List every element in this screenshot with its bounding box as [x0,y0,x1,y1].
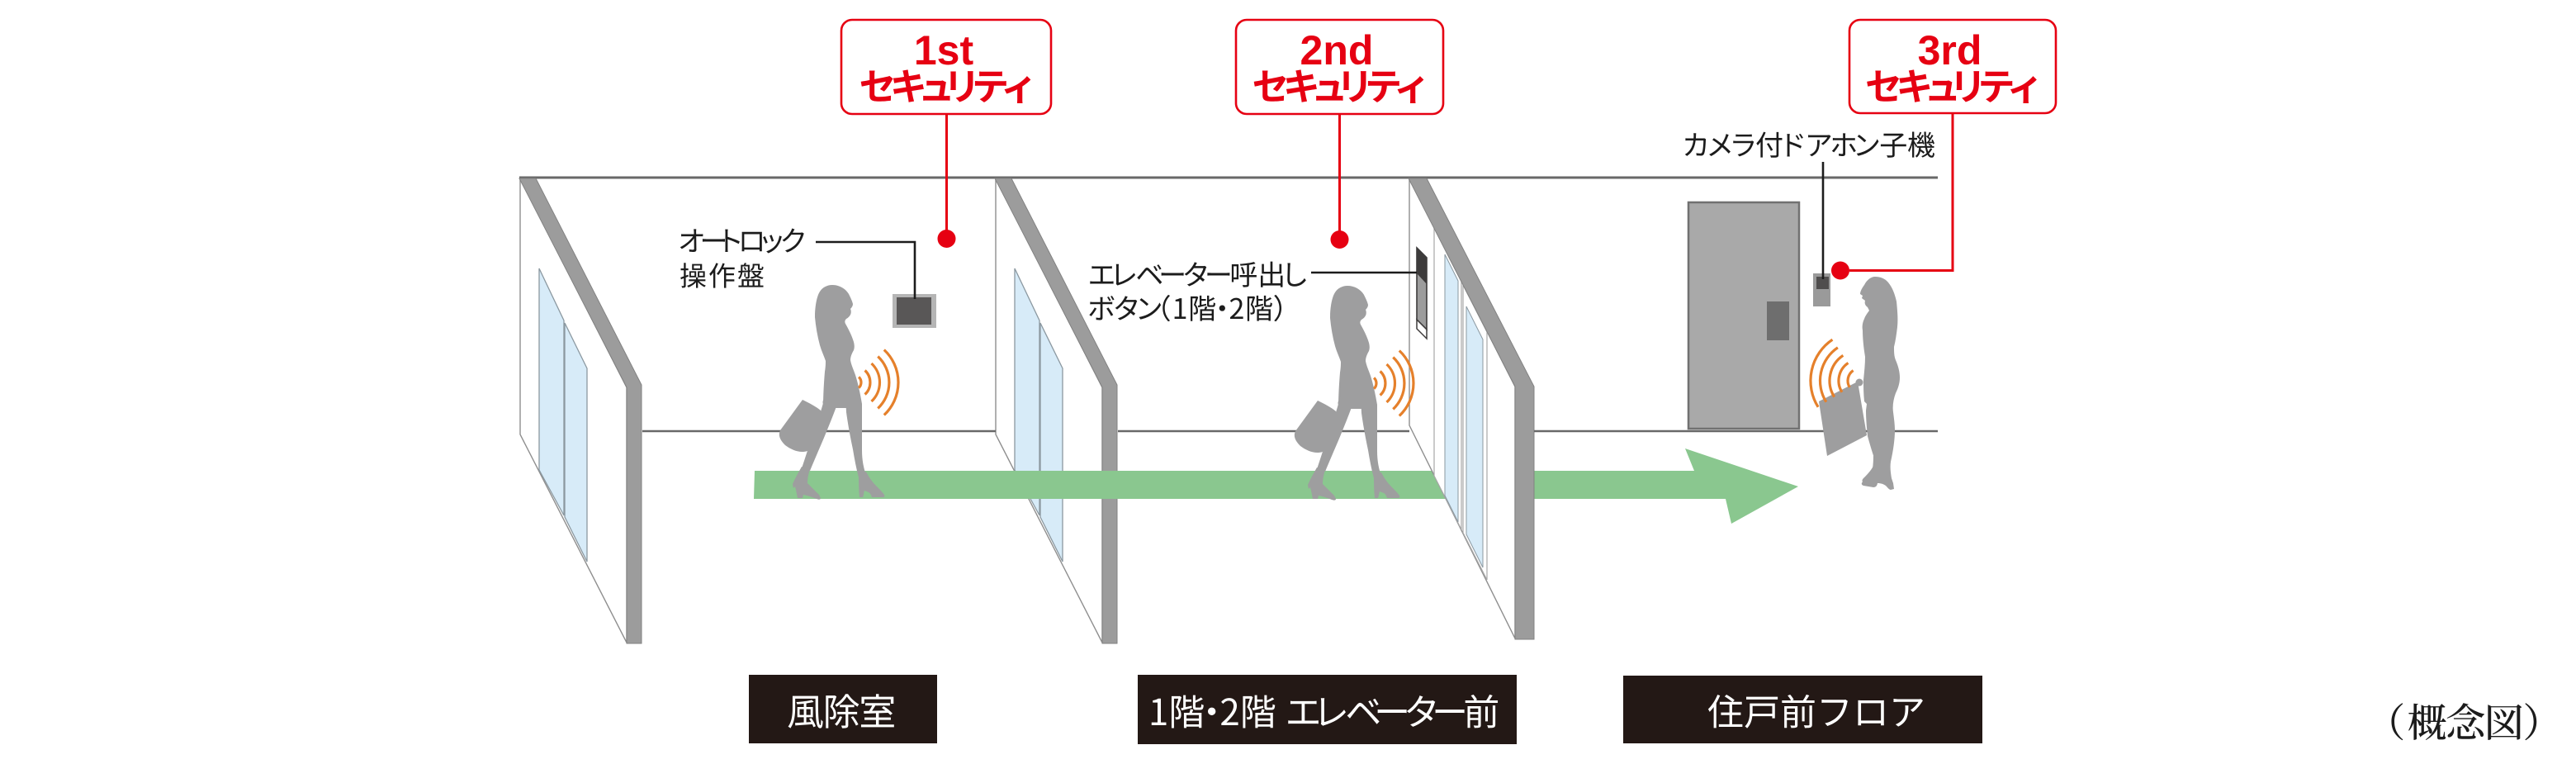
svg-text:3rd: 3rd [1918,27,1982,74]
svg-text:1st: 1st [914,27,974,74]
svg-text:2nd: 2nd [1300,27,1374,74]
